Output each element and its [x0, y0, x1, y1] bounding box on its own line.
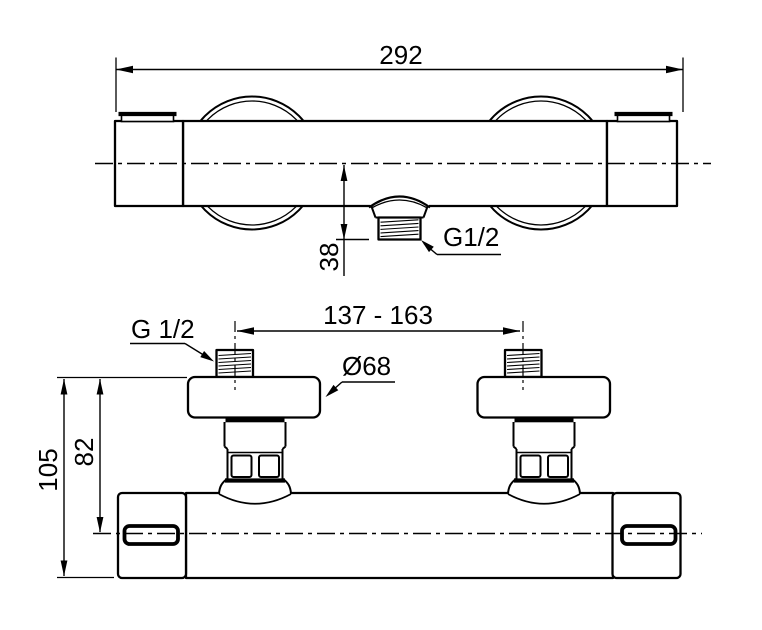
leader-arrowhead	[200, 351, 214, 362]
arrowhead-down	[341, 224, 348, 240]
arrowhead-down	[61, 561, 68, 577]
left-union-column	[225, 422, 286, 479]
pipe-thread-callout: G 1/2	[130, 314, 214, 362]
dim-38-label: 38	[314, 243, 344, 272]
arrowhead-up	[97, 379, 104, 395]
right-nut-flat-b	[548, 456, 568, 478]
g12-pipe-label: G 1/2	[131, 314, 195, 344]
arrowhead-down	[97, 517, 104, 533]
arrowhead-left	[237, 327, 254, 334]
top-view: 137 - 163 G 1/2 Ø68 105	[33, 300, 702, 578]
dim-82-label: 82	[69, 438, 99, 467]
right-cap-slot	[622, 526, 676, 544]
arrowhead-right	[503, 327, 520, 334]
arrowhead-left	[116, 66, 133, 73]
escutcheon-diameter-callout: Ø68	[326, 351, 396, 397]
right-escutcheon	[478, 377, 611, 418]
technical-drawing-canvas: 292 38 G1/2	[0, 0, 762, 630]
arrowhead-up	[61, 379, 68, 395]
right-nut-shadow	[515, 418, 574, 423]
mixer-body-top	[186, 493, 613, 578]
left-cap-slot	[125, 526, 179, 544]
right-union-column	[514, 422, 575, 479]
dim-105-label: 105	[33, 448, 63, 491]
dim-292-label: 292	[379, 40, 422, 70]
arrowhead-right	[666, 66, 683, 73]
right-nut-flat-a	[521, 456, 541, 478]
dia-68-label: Ø68	[342, 351, 391, 381]
left-nut-flat-a	[232, 456, 252, 478]
front-view: 292 38 G1/2	[95, 40, 711, 276]
dimension-82: 82	[69, 379, 103, 533]
left-nut-shadow	[226, 418, 285, 423]
shower-mixer-drawing: 292 38 G1/2	[0, 0, 762, 630]
g12-outlet-label: G1/2	[443, 222, 499, 252]
dimension-137-163: 137 - 163	[237, 300, 520, 335]
left-escutcheon	[188, 377, 320, 418]
left-nut-flat-b	[259, 456, 279, 478]
dimension-292: 292	[116, 40, 683, 112]
outlet-thread-callout: G1/2	[421, 222, 501, 255]
dim-137-163-label: 137 - 163	[323, 300, 433, 330]
